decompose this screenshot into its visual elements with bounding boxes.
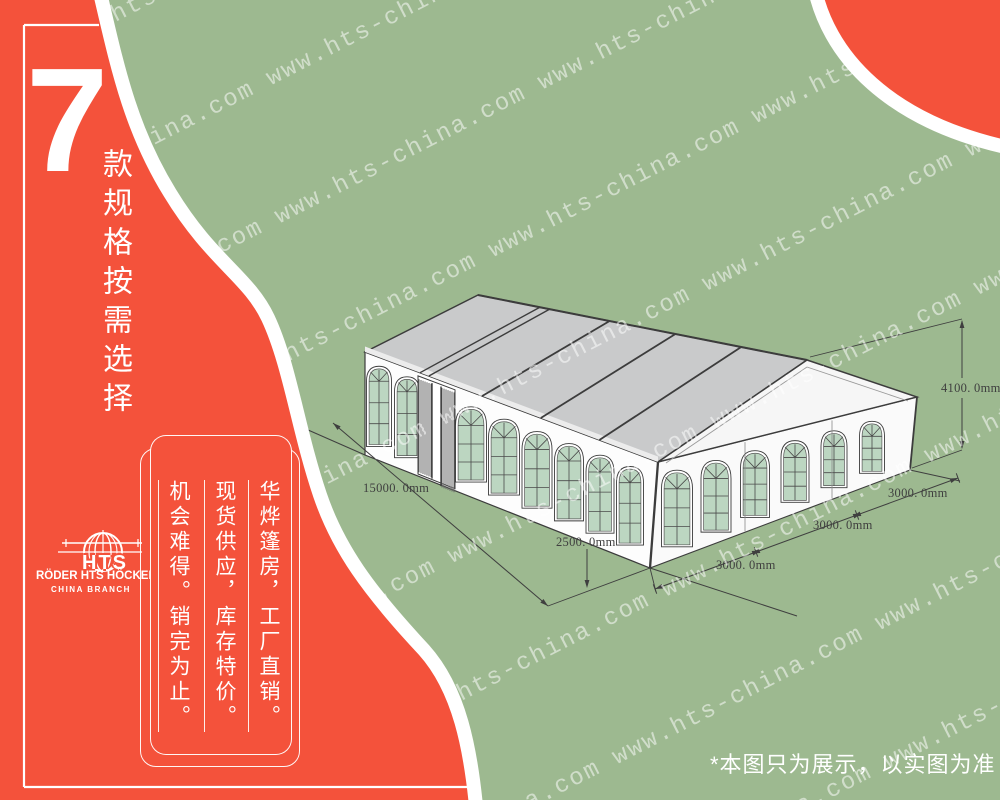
poster-root: 15000. 0mm 2500. 0mm 3000. 0mm 3000. 0mm… <box>0 0 1000 800</box>
brand-logo: HTS RÖDER HTS HÖCKER CHINA BRANCH <box>36 530 146 602</box>
headline-vertical-text: 款规格按需选择 <box>92 148 136 448</box>
promo-column-stock: 现货供应，库存特价。 <box>204 480 239 732</box>
disclaimer-text: *本图只为展示，以实图为准 <box>710 747 996 779</box>
promo-column-urgency: 机会难得。销完为止。 <box>158 480 193 732</box>
left-panel: 7 款规格按需选择 HTS RÖDER HTS HÖCKER CHINA BRA… <box>0 0 1000 800</box>
logo-name: RÖDER HTS HÖCKER <box>36 570 146 582</box>
logo-branch: CHINA BRANCH <box>36 585 146 594</box>
promo-column-product: 华烨篷房，工厂直销。 <box>248 480 283 732</box>
